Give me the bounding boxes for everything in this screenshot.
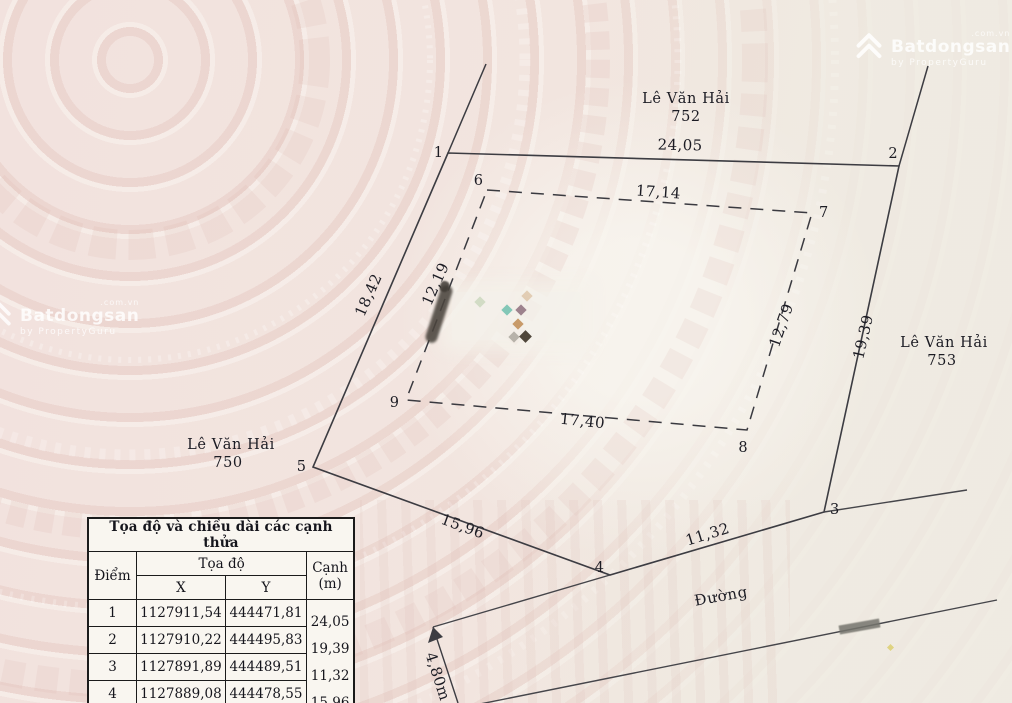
edge-value: 24,05 <box>307 614 353 630</box>
dim-label-7-8: 12,79 <box>765 301 797 349</box>
edge-value: 19,39 <box>307 641 353 657</box>
edge-value: 15,96 <box>307 695 353 703</box>
neighbor-left-plot: 750 <box>213 455 242 471</box>
table-row: 1 1127911,54 444471,81 24,05 19,39 11,32… <box>88 600 354 627</box>
point-label-8: 8 <box>738 440 747 456</box>
coordinates-table: Tọa độ và chiều dài các cạnh thửa Điểm T… <box>87 517 355 703</box>
boundary-extension-p2 <box>899 66 928 166</box>
point-label-2: 2 <box>888 146 897 162</box>
neighbor-top-plot: 752 <box>671 109 700 125</box>
cell-point: 2 <box>88 627 137 654</box>
point-label-4: 4 <box>595 560 604 576</box>
road-edge-right <box>824 490 967 512</box>
point-label-5: 5 <box>297 459 306 475</box>
road-far-edge <box>470 600 997 703</box>
dim-label-4-3: 11,32 <box>683 519 731 549</box>
cell-point: 1 <box>88 600 137 627</box>
dim-label-5-4: 15,96 <box>439 510 487 542</box>
dim-label-1-2: 24,05 <box>657 135 702 154</box>
col-header-x: X <box>137 576 226 600</box>
cell-y: 444471,81 <box>225 600 306 627</box>
neighbor-right-name: Lê Văn Hải <box>900 334 988 351</box>
dim-label-6-7: 17,14 <box>635 181 681 202</box>
col-header-coords: Tọa độ <box>137 552 307 576</box>
cell-x: 1127911,54 <box>137 600 226 627</box>
cell-x: 1127889,08 <box>137 681 226 703</box>
table-title: Tọa độ và chiều dài các cạnh thửa <box>88 518 354 552</box>
point-label-1: 1 <box>434 145 443 161</box>
cell-x: 1127910,22 <box>137 627 226 654</box>
dim-label-2-3: 19,39 <box>849 313 877 361</box>
boundary-extension-p1 <box>448 64 486 153</box>
arrowhead-icon <box>428 627 443 643</box>
road-label: Đường <box>693 583 749 610</box>
cell-y: 444489,51 <box>225 654 306 681</box>
cell-point: 3 <box>88 654 137 681</box>
col-header-edge-unit: (m) <box>309 576 351 592</box>
neighbor-right-plot: 753 <box>927 353 956 369</box>
road-edge-left <box>433 575 610 627</box>
dim-label-9-8: 17,40 <box>559 410 606 433</box>
col-header-edge: Cạnh (m) <box>307 552 354 600</box>
cell-y: 444495,83 <box>225 627 306 654</box>
cell-y: 444478,55 <box>225 681 306 703</box>
dim-label-1-5: 18,42 <box>351 271 386 319</box>
survey-photo: 1 2 3 4 5 6 7 8 9 24,05 17,14 18,42 12,1… <box>0 0 1012 703</box>
neighbor-left-name: Lê Văn Hải <box>187 436 275 453</box>
edge-length-column: 24,05 19,39 11,32 15,96 <box>307 600 354 703</box>
cell-point: 4 <box>88 681 137 703</box>
edge-value: 11,32 <box>307 668 353 684</box>
point-label-9: 9 <box>390 395 399 411</box>
cell-x: 1127891,89 <box>137 654 226 681</box>
plot-boundary <box>313 153 899 575</box>
col-header-y: Y <box>225 576 306 600</box>
col-header-edge-label: Cạnh <box>309 560 351 576</box>
inner-dashed-boundary <box>406 190 812 430</box>
point-label-3: 3 <box>830 502 839 518</box>
col-header-point: Điểm <box>88 552 137 600</box>
point-label-6: 6 <box>474 173 483 189</box>
neighbor-top-name: Lê Văn Hải <box>642 90 730 107</box>
point-label-7: 7 <box>819 205 828 221</box>
